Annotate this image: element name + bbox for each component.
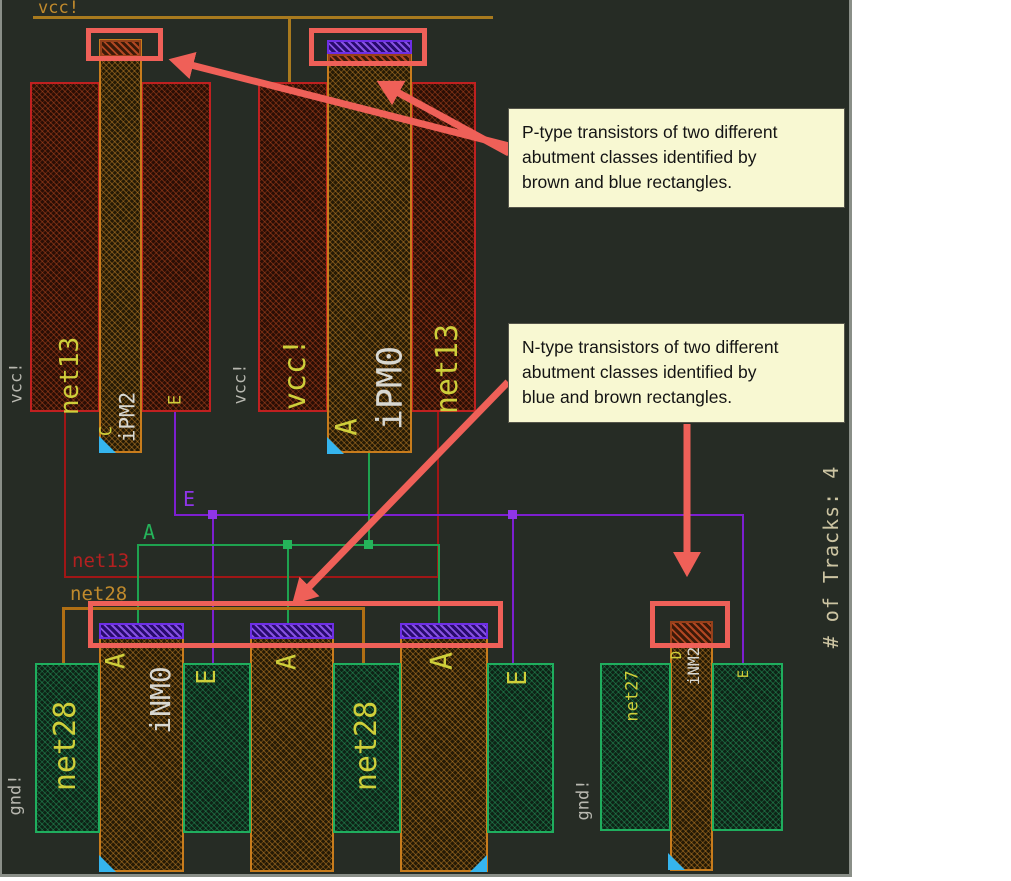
callout-p-type: P-type transistors of two different abut… xyxy=(508,108,845,208)
canvas-bottom-edge xyxy=(0,874,852,877)
tracks-count-label: # of Tracks: 4 xyxy=(821,466,841,649)
e-wire-drop3[interactable] xyxy=(742,514,744,664)
gnd-right-label: gnd! xyxy=(576,780,593,821)
mid-vcc-label: vcc! xyxy=(233,364,250,405)
a-wire-label: A xyxy=(143,522,155,542)
e-wire-drop2[interactable] xyxy=(512,514,514,664)
highlight-pmos2-blue-pad xyxy=(309,28,427,66)
nmos2-e-label: E xyxy=(737,670,751,678)
callout-n-type: N-type transistors of two different abut… xyxy=(508,323,845,423)
e-wire-horizontal[interactable] xyxy=(174,514,744,516)
nmos2-net27-label: net27 xyxy=(625,670,642,721)
highlight-pmos1-brown-pad xyxy=(86,28,163,61)
e-wire-label: E xyxy=(183,489,195,509)
vcc-rail-wire[interactable] xyxy=(33,16,493,19)
pmos2-net13-label: net13 xyxy=(433,324,463,414)
pmos1-net13-label: net13 xyxy=(57,337,83,415)
pmos1-vcc-left-label: vcc! xyxy=(9,363,26,404)
nmos-diffusion-e-b[interactable] xyxy=(487,663,554,833)
net13-wire-label: net13 xyxy=(72,552,129,571)
nmos2-instance-label: iNM2 xyxy=(686,647,702,686)
callout-n-type-line3: blue and brown rectangles. xyxy=(522,385,844,410)
a-wire-junction1 xyxy=(283,540,292,549)
pmos2-pin-a-label: A xyxy=(333,418,362,435)
a-wire-junction2 xyxy=(364,540,373,549)
pmos2-instance-label: iPM0 xyxy=(374,346,409,430)
pmos2-origin-marker xyxy=(327,437,344,454)
highlight-nmos2-brown-pad xyxy=(650,601,730,648)
net13-wire-left-vertical[interactable] xyxy=(64,412,66,578)
figure-page: vcc! vcc! net13 C iPM2 E vcc! vcc! iPM0 … xyxy=(0,0,1011,881)
callout-n-type-line2: abutment classes identified by xyxy=(522,360,844,385)
nmos-e-b-label: E xyxy=(505,670,531,686)
nmos2-pin-d-label: D xyxy=(670,651,684,659)
nmos-net28-b-label: net28 xyxy=(352,701,382,791)
nmos-gate1-origin-marker xyxy=(99,855,116,872)
pmos1-right-diffusion[interactable] xyxy=(141,82,211,412)
nmos-e-a-label: E xyxy=(194,669,220,685)
e-wire-top-vertical[interactable] xyxy=(174,412,176,516)
vcc-rail-stub-wire[interactable] xyxy=(288,17,291,82)
nmos-net28-a-label: net28 xyxy=(51,701,81,791)
nmos-gate1-pin-a-label: A xyxy=(103,653,130,669)
callout-p-type-line3: brown and blue rectangles. xyxy=(522,170,844,195)
net28-wire-drop1[interactable] xyxy=(62,607,65,665)
nmos-gate2-pin-a-label: A xyxy=(274,654,301,670)
nmos2-origin-marker xyxy=(668,853,685,870)
pmos1-pin-e-label: E xyxy=(168,395,185,405)
net13-wire-horizontal[interactable] xyxy=(64,576,439,578)
nmos-gate3-origin-marker xyxy=(470,855,487,872)
nmos-diffusion-e-a[interactable] xyxy=(183,663,251,833)
pmos2-vcc-label: vcc! xyxy=(281,338,311,410)
pmos1-instance-label: iPM2 xyxy=(118,392,139,443)
e-wire-junction1 xyxy=(208,510,217,519)
canvas-left-edge xyxy=(0,0,2,877)
callout-n-type-line1: N-type transistors of two different xyxy=(522,335,844,360)
a-wire-top-vertical[interactable] xyxy=(368,453,370,546)
highlight-nmos-row-blue-pads xyxy=(88,601,503,648)
callout-p-type-line2: abutment classes identified by xyxy=(522,145,844,170)
pmos1-pin-c-label: C xyxy=(99,426,116,436)
nmos2-diffusion-e[interactable] xyxy=(712,663,783,831)
e-wire-junction2 xyxy=(508,510,517,519)
vcc-rail-label: vcc! xyxy=(38,0,79,17)
pmos1-origin-marker xyxy=(99,436,116,453)
nmos-gate3-pin-a-label: A xyxy=(428,652,458,670)
callout-p-type-line1: P-type transistors of two different xyxy=(522,120,844,145)
nmos-gate1-instance-label: iNM0 xyxy=(147,666,175,733)
gnd-left-label: gnd! xyxy=(8,775,25,816)
canvas-right-edge xyxy=(849,0,852,877)
